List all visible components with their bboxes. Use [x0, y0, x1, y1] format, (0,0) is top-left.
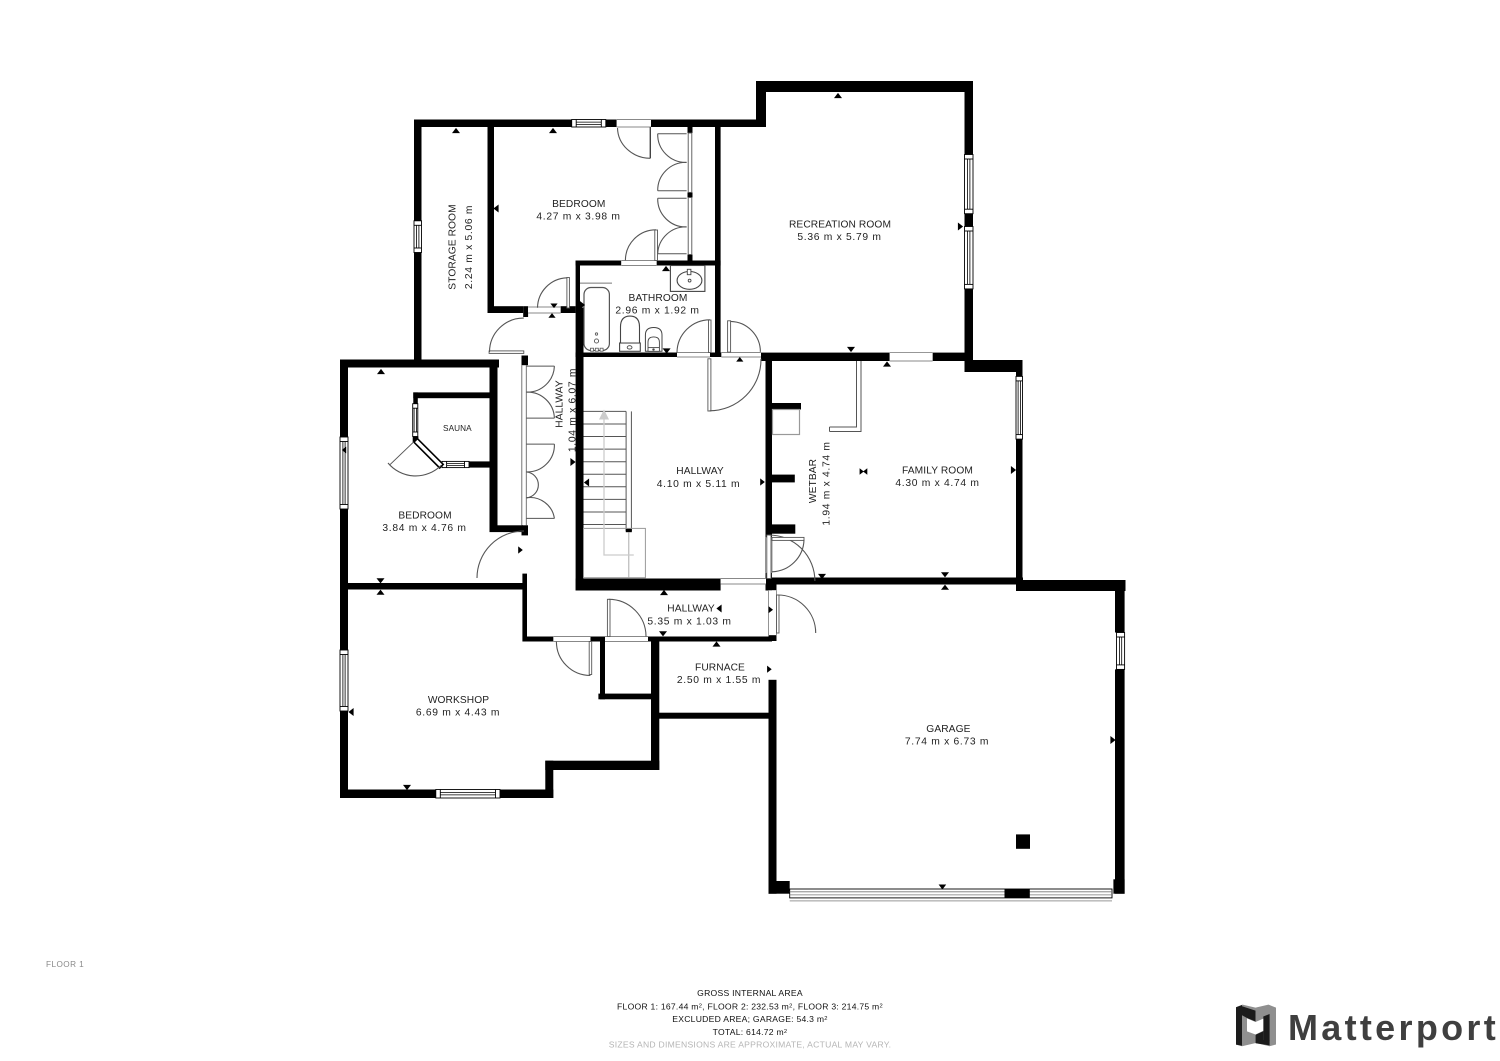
svg-text:HALLWAY: HALLWAY [667, 604, 715, 615]
svg-text:STORAGE ROOM: STORAGE ROOM [448, 204, 459, 289]
svg-text:BEDROOM: BEDROOM [398, 510, 451, 521]
svg-text:WORKSHOP: WORKSHOP [428, 695, 489, 706]
svg-text:2.24 m x 5.06 m: 2.24 m x 5.06 m [464, 205, 475, 289]
svg-text:BATHROOM: BATHROOM [629, 293, 688, 304]
svg-text:WETBAR: WETBAR [808, 459, 819, 503]
svg-text:BEDROOM: BEDROOM [552, 199, 605, 210]
svg-text:FAMILY ROOM: FAMILY ROOM [902, 465, 973, 476]
svg-text:4.30 m x 4.74 m: 4.30 m x 4.74 m [895, 478, 979, 489]
svg-text:FLOOR 1: FLOOR 1 [46, 960, 84, 969]
svg-text:GROSS INTERNAL AREA: GROSS INTERNAL AREA [697, 988, 803, 998]
svg-text:5.36 m x 5.79 m: 5.36 m x 5.79 m [797, 232, 881, 243]
svg-text:HALLWAY: HALLWAY [555, 380, 566, 428]
svg-text:1.04 m x 6.07 m: 1.04 m x 6.07 m [568, 368, 579, 452]
svg-text:7.74 m x 6.73 m: 7.74 m x 6.73 m [905, 737, 989, 748]
svg-text:Matterport: Matterport [1288, 1007, 1499, 1048]
svg-text:SIZES AND DIMENSIONS ARE APPRO: SIZES AND DIMENSIONS ARE APPROXIMATE, AC… [609, 1039, 892, 1049]
svg-text:4.27 m x 3.98 m: 4.27 m x 3.98 m [536, 212, 620, 223]
svg-text:6.69 m x 4.43 m: 6.69 m x 4.43 m [416, 708, 500, 719]
svg-text:HALLWAY: HALLWAY [676, 466, 724, 477]
svg-text:TOTAL: 614.72 m2: TOTAL: 614.72 m2 [713, 1027, 788, 1037]
svg-text:3.84 m x 4.76 m: 3.84 m x 4.76 m [382, 523, 466, 534]
svg-text:2.96 m x 1.92 m: 2.96 m x 1.92 m [615, 306, 699, 317]
svg-text:FLOOR 1: 167.44 m2, FLOOR 2: 2: FLOOR 1: 167.44 m2, FLOOR 2: 232.53 m2, … [617, 1001, 883, 1011]
svg-text:1.94 m x 4.74 m: 1.94 m x 4.74 m [822, 441, 833, 525]
svg-text:EXCLUDED AREA; GARAGE: 54.3 m2: EXCLUDED AREA; GARAGE: 54.3 m2 [672, 1014, 827, 1024]
svg-text:SAUNA: SAUNA [443, 424, 472, 433]
svg-text:4.10 m x 5.11 m: 4.10 m x 5.11 m [657, 479, 741, 490]
svg-text:5.35 m x 1.03 m: 5.35 m x 1.03 m [647, 616, 731, 627]
svg-text:2.50 m x 1.55 m: 2.50 m x 1.55 m [677, 675, 761, 686]
svg-text:FURNACE: FURNACE [695, 663, 745, 674]
svg-text:RECREATION ROOM: RECREATION ROOM [789, 220, 891, 231]
svg-text:GARAGE: GARAGE [926, 724, 970, 735]
